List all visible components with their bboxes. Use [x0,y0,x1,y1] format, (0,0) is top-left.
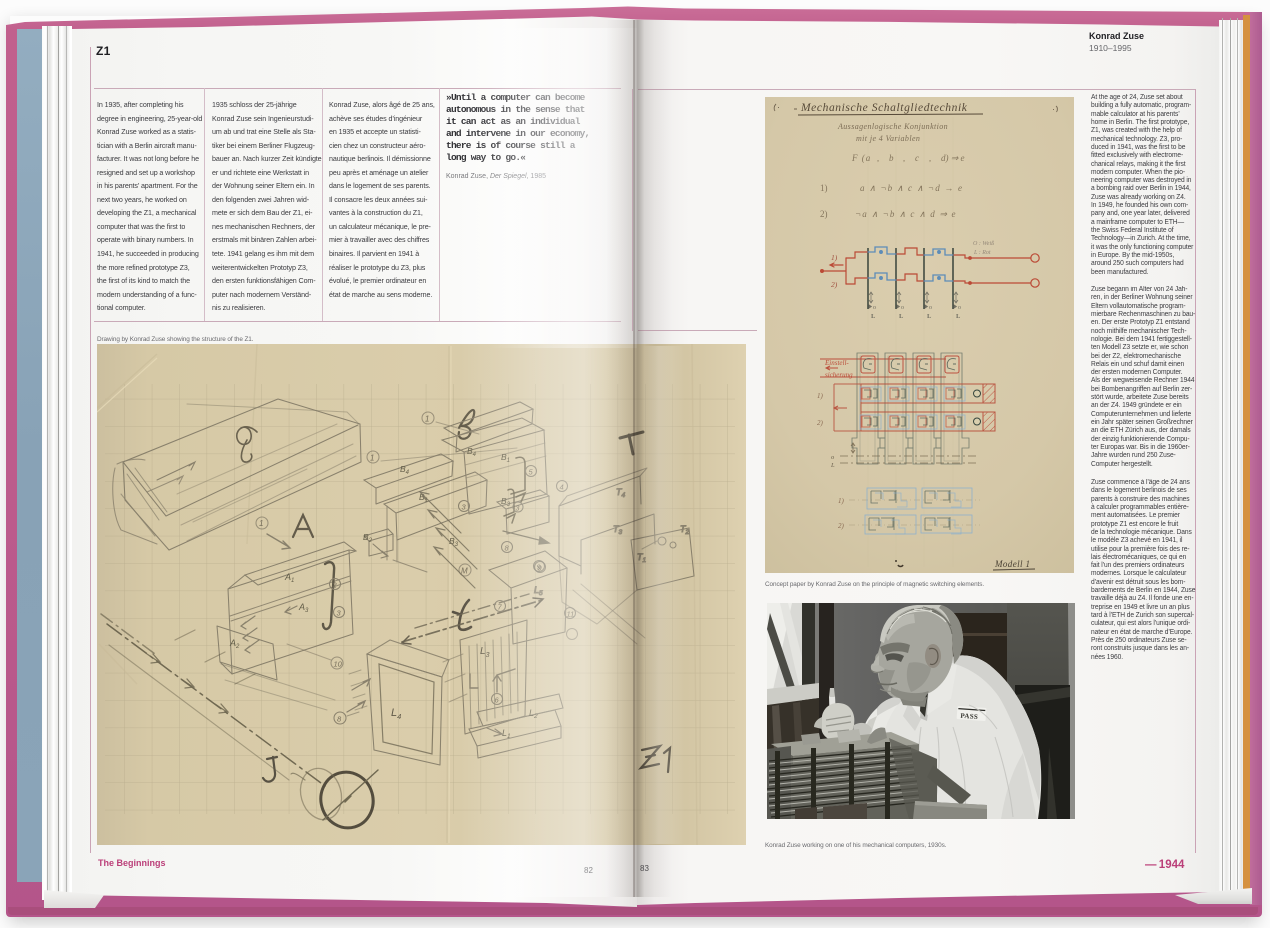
svg-text:Aussagenlogische Konjunktion: Aussagenlogische Konjunktion [837,122,948,131]
svg-text:O : Weiß: O : Weiß [973,240,994,247]
svg-text:2): 2) [820,209,828,219]
svg-text:L: L [871,313,876,320]
svg-text:Modell 1: Modell 1 [994,559,1030,569]
svg-text:2: 2 [332,581,338,590]
svg-text:1): 1) [838,497,845,505]
svg-text:c: c [915,153,919,163]
svg-text:1: 1 [259,519,263,528]
svg-text:o: o [929,305,932,311]
svg-text:,: , [877,153,879,163]
svg-text:2): 2) [831,280,838,289]
svg-text:PASS: PASS [960,712,978,721]
svg-text:L: L [956,313,961,320]
svg-text:2): 2) [838,522,845,530]
svg-text:Einstell-: Einstell- [824,359,849,367]
svg-text:,: , [903,153,905,163]
svg-text:¬a ∧ ¬b ∧ c ∧ d ⇒ e: ¬a ∧ ¬b ∧ c ∧ d ⇒ e [855,209,957,219]
svg-text:o: o [958,305,961,311]
svg-text:o: o [901,305,904,311]
svg-text:F (a: F (a [851,153,871,163]
svg-text:Mechanische Schaltgliedtechni: Mechanische Schaltgliedtechnik [800,102,968,114]
svg-text:,: , [929,153,931,163]
svg-text:b: b [889,153,894,163]
svg-text:L : Rot: L : Rot [973,250,991,256]
svg-text:L: L [927,313,932,320]
svg-text:L: L [830,462,835,469]
svg-text:sicherung: sicherung [825,371,853,379]
svg-text:1): 1) [817,392,824,400]
svg-text:d) ⇒ e: d) ⇒ e [941,153,965,163]
svg-text:10: 10 [334,660,343,669]
svg-text:o: o [873,305,876,311]
svg-text:a ∧ ¬b ∧ c ∧ ¬d → e: a ∧ ¬b ∧ c ∧ ¬d → e [860,183,963,193]
svg-text:1: 1 [425,415,429,424]
svg-text:2): 2) [817,419,824,427]
svg-text:1): 1) [820,183,828,193]
svg-text:1): 1) [831,253,838,262]
svg-text:mit je 4 Variablen: mit je 4 Variablen [856,134,920,143]
svg-text:1: 1 [370,454,374,463]
svg-text:L: L [899,313,904,320]
